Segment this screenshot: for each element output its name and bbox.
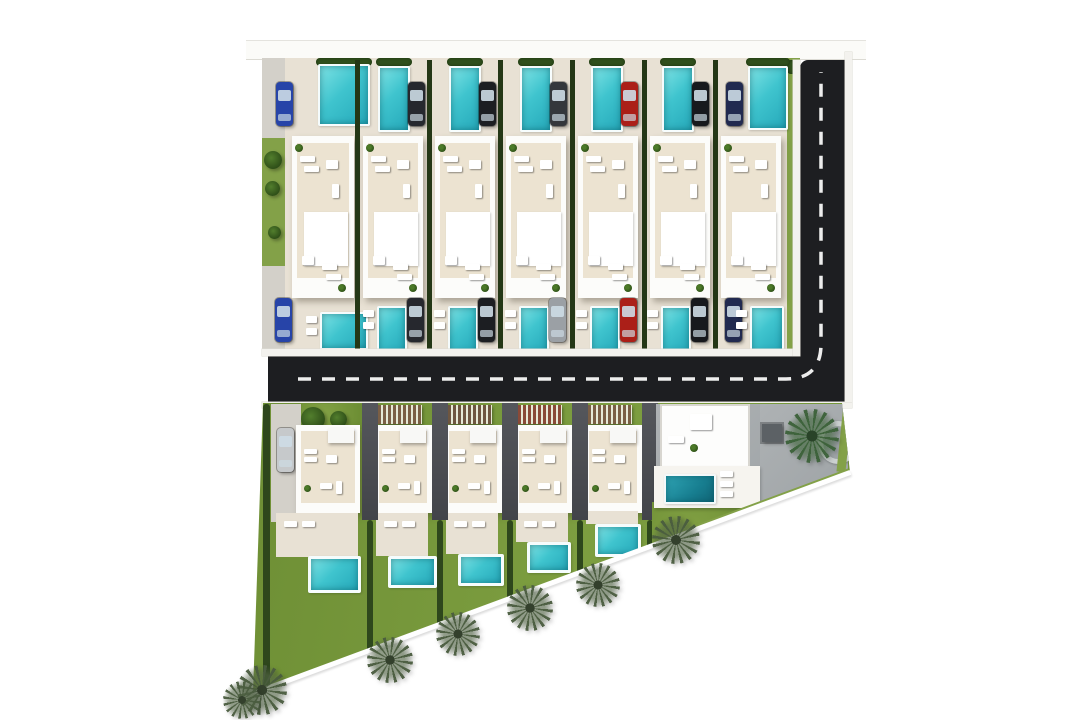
car-windshield (552, 90, 565, 101)
interior-dining-table (690, 414, 712, 430)
roof-furniture (608, 264, 623, 270)
car-rear-window (727, 330, 740, 337)
top-villa-3-car-top (479, 82, 496, 126)
top-villa-7-building (721, 136, 781, 298)
roof-plant (767, 284, 775, 292)
bottom-villa-4-building (514, 425, 572, 513)
hedge-row (518, 58, 554, 66)
car-windshield (693, 306, 706, 317)
bottom-villa-2-pergola (378, 405, 422, 424)
palm-tree (652, 516, 700, 564)
roof-furniture (326, 160, 338, 169)
corner-pool (664, 474, 716, 504)
roof-furniture (684, 160, 696, 169)
bottom-villa-5-building (584, 425, 642, 513)
top-villa-2-pool-bottom (377, 306, 407, 354)
roof-plant (724, 144, 732, 152)
roof-furniture (468, 483, 480, 489)
curb (793, 60, 800, 356)
car-rear-window (277, 330, 290, 337)
car-windshield (277, 306, 290, 317)
terrace-furniture (434, 310, 445, 317)
roof-furniture (465, 264, 480, 270)
bottom-villa-4-terrace (516, 513, 568, 542)
car-rear-window (480, 330, 493, 337)
roof-furniture (320, 483, 332, 489)
roof-furniture (658, 156, 673, 162)
top-villa-6-building (650, 136, 710, 298)
car-rear-window (622, 330, 635, 337)
palm-tree (507, 585, 553, 631)
roof-plant (452, 485, 459, 492)
tree (268, 226, 281, 239)
roof-furniture (761, 184, 768, 198)
top-villa-2-building (363, 136, 423, 298)
roof-furniture (733, 166, 748, 172)
roof-furniture (322, 264, 337, 270)
site-plan (0, 0, 1080, 720)
skylight-panel (400, 428, 426, 443)
bottom-villa-1-building (296, 425, 360, 513)
car-windshield (623, 90, 636, 101)
roof-furniture (624, 481, 630, 494)
roof-furniture (588, 256, 600, 265)
roof-plant (304, 485, 311, 492)
top-villa-5-pool-top (591, 66, 623, 132)
roof-furniture (684, 274, 699, 280)
top-villa-1-car-top (276, 82, 293, 126)
car-windshield (728, 90, 741, 101)
sidewalk-band (246, 40, 866, 60)
roof-plant (509, 144, 517, 152)
roof-plant (653, 144, 661, 152)
plot-divider-hedge (498, 60, 503, 354)
roof-plant (696, 284, 704, 292)
bottom-villa-2-building (374, 425, 432, 513)
top-villa-5-car-bottom (620, 298, 637, 342)
roof-furniture (300, 156, 315, 162)
terrace-furniture (524, 521, 537, 527)
roof-plant (581, 144, 589, 152)
palm-tree (436, 612, 480, 656)
car-rear-window (693, 330, 706, 337)
bottom-villa-3-terrace (446, 513, 498, 554)
plot-divider-hedge (642, 60, 647, 354)
palm-tree (223, 681, 261, 719)
roof-furniture (538, 483, 550, 489)
roof-furniture (680, 264, 695, 270)
roof-furniture (518, 166, 533, 172)
roof-furniture (546, 184, 553, 198)
top-villa-2-car-top (408, 82, 425, 126)
roof-furniture (590, 166, 605, 172)
terrace-furniture (402, 521, 415, 527)
roof-furniture (403, 184, 410, 198)
roof-furniture (397, 274, 412, 280)
terrace-furniture (302, 521, 315, 527)
roof-furniture (326, 274, 341, 280)
top-villa-6-pool-top (662, 66, 694, 132)
skylight-panel (470, 428, 496, 443)
roof-plant (481, 284, 489, 292)
roof-furniture (445, 256, 457, 265)
bottom-villa-4-pergola (518, 405, 562, 424)
top-villa-6-car-bottom (691, 298, 708, 342)
roof-furniture (414, 481, 420, 494)
road-vertical (800, 60, 845, 402)
top-villa-3-car-bottom (478, 298, 495, 342)
palm-tree (576, 563, 620, 607)
car-rear-window (409, 330, 422, 337)
roof-furniture (612, 274, 627, 280)
car-rear-window (481, 114, 494, 121)
car-windshield (409, 306, 422, 317)
roof-furniture (586, 156, 601, 162)
plot-divider-hedge (577, 520, 583, 696)
driveway (362, 402, 378, 520)
plot-divider-hedge (437, 520, 443, 696)
roof-furniture (393, 264, 408, 270)
car-windshield (410, 90, 423, 101)
roof-furniture (382, 449, 395, 454)
roof-furniture (447, 166, 462, 172)
car-windshield (481, 90, 494, 101)
top-villa-7-car-top (726, 82, 743, 126)
roof-furniture (332, 184, 339, 198)
tree (265, 181, 280, 196)
terrace-furniture (647, 310, 658, 317)
skylight-panel (328, 428, 354, 443)
car-rear-window (551, 330, 564, 337)
palm-tree (367, 637, 413, 683)
roof-furniture (536, 264, 551, 270)
terrace-furniture (576, 322, 587, 329)
bottom-villa-5-terrace (586, 511, 638, 524)
car-windshield (551, 306, 564, 317)
roof-furniture (469, 160, 481, 169)
terrace-furniture (736, 322, 747, 329)
skylight-panel (610, 428, 636, 443)
top-villa-4-pool-top (520, 66, 552, 132)
terrace-furniture (284, 521, 297, 527)
terrace-furniture (472, 521, 485, 527)
roof-furniture (612, 160, 624, 169)
top-villa-5-pool-bottom (590, 306, 620, 354)
roof-plant (409, 284, 417, 292)
roof-furniture (371, 156, 386, 162)
roof-furniture (522, 449, 535, 454)
car-rear-window (623, 114, 636, 121)
skylight-panel (540, 428, 566, 443)
terrace-furniture (647, 322, 658, 329)
top-villa-7-pool-bottom (750, 306, 784, 354)
roof-furniture (404, 455, 415, 463)
bottom-villa-3-pergola (448, 405, 492, 424)
roof-furniture (474, 455, 485, 463)
car-rear-window (410, 114, 423, 121)
hedge-row (589, 58, 625, 66)
roof-furniture (751, 264, 766, 270)
tree (264, 151, 282, 169)
roof-furniture (469, 274, 484, 280)
top-villa-2-car-bottom (407, 298, 424, 342)
top-villa-1-car-bottom (275, 298, 292, 342)
terrace-furniture (736, 310, 747, 317)
top-villa-1-pool-bottom (320, 312, 368, 350)
top-villa-2-pool-top (378, 66, 410, 132)
plot-divider-hedge (355, 60, 360, 354)
top-villa-7-pool-top (748, 66, 788, 130)
roof-plant (552, 284, 560, 292)
roof-furniture (516, 256, 528, 265)
terrace-furniture (384, 521, 397, 527)
curb (262, 349, 794, 356)
roof-furniture (375, 166, 390, 172)
roof-furniture (373, 256, 385, 265)
courtyard-palm (785, 409, 839, 463)
roof-furniture (304, 457, 317, 462)
interior-plant (690, 444, 698, 452)
bottom-villa-4-pool (527, 542, 571, 573)
car-rear-window (552, 114, 565, 121)
car-windshield (279, 436, 292, 447)
roof-furniture (731, 256, 743, 265)
car-windshield (480, 306, 493, 317)
plot-divider-hedge (570, 60, 575, 354)
roof-furniture (662, 166, 677, 172)
roof-furniture (544, 455, 555, 463)
roof-furniture (304, 449, 317, 454)
roof-furniture (398, 483, 410, 489)
bottom-villa-2-pool (388, 556, 437, 588)
top-villa-3-pool-top (449, 66, 481, 132)
roof-furniture (382, 457, 395, 462)
bottom-villa-3-pool (458, 554, 504, 586)
roof-plant (295, 144, 303, 152)
roof-furniture (397, 160, 409, 169)
driveway (572, 402, 588, 520)
roof-furniture (452, 449, 465, 454)
terrace-furniture (434, 322, 445, 329)
bottom-villa-3-building (444, 425, 502, 513)
corner-outdoor-table (762, 424, 782, 442)
plot-divider-hedge (713, 60, 718, 354)
terrace-furniture (454, 521, 467, 527)
roof-furniture (336, 481, 342, 494)
terrace-furniture (576, 310, 587, 317)
terrace-furniture (542, 521, 555, 527)
terrace-furniture (505, 310, 516, 317)
terrace-furniture (306, 316, 317, 323)
roof-furniture (443, 156, 458, 162)
roof-furniture (452, 457, 465, 462)
roof-furniture (484, 481, 490, 494)
corner-open-interior (660, 404, 750, 468)
roof-plant (592, 485, 599, 492)
roof-furniture (660, 256, 672, 265)
plot-divider-hedge (427, 60, 432, 354)
pool-lounger (720, 471, 733, 477)
roof-furniture (326, 455, 337, 463)
top-villa-4-pool-bottom (519, 306, 549, 354)
roof-furniture (304, 166, 319, 172)
car-windshield (694, 90, 707, 101)
roof-furniture (618, 184, 625, 198)
roof-furniture (614, 455, 625, 463)
roof-furniture (522, 457, 535, 462)
interior-sofa (668, 436, 684, 443)
roof-furniture (729, 156, 744, 162)
bottom-villa-2-terrace (376, 513, 428, 556)
hedge-row (746, 58, 790, 66)
boundary-hedge-left (263, 404, 270, 689)
top-villa-3-pool-bottom (448, 306, 478, 354)
top-villa-5-car-top (621, 82, 638, 126)
roof-furniture (475, 184, 482, 198)
roof-furniture (302, 256, 314, 265)
top-villa-3-building (435, 136, 495, 298)
top-villa-1-building (292, 136, 354, 298)
roof-furniture (592, 449, 605, 454)
hedge-row (447, 58, 483, 66)
top-villa-6-car-top (692, 82, 709, 126)
roof-plant (438, 144, 446, 152)
top-villa-1-pool-top (318, 64, 370, 126)
roof-furniture (755, 274, 770, 280)
car-rear-window (728, 114, 741, 121)
bottom-villa-5-pergola (588, 405, 632, 424)
hedge-row (376, 58, 412, 66)
roof-plant (382, 485, 389, 492)
curb (845, 52, 852, 402)
car-rear-window (279, 460, 292, 467)
terrace-furniture (306, 328, 317, 335)
car-windshield (278, 90, 291, 101)
top-villa-7-car-bottom (725, 298, 742, 342)
top-villa-4-car-bottom (549, 298, 566, 342)
roof-furniture (554, 481, 560, 494)
pool-lounger (720, 481, 733, 487)
roof-plant (366, 144, 374, 152)
roof-furniture (540, 274, 555, 280)
roof-plant (522, 485, 529, 492)
terrace-furniture (505, 322, 516, 329)
car-rear-window (694, 114, 707, 121)
terrace-furniture (363, 322, 374, 329)
roof-plant (338, 284, 346, 292)
roof-plant (624, 284, 632, 292)
top-villa-5-building (578, 136, 638, 298)
car-windshield (622, 306, 635, 317)
roof-furniture (592, 457, 605, 462)
bottom-villa-1-pool (308, 556, 361, 593)
roof-furniture (514, 156, 529, 162)
bottom-villa-1-terrace (276, 513, 358, 557)
driveway (502, 402, 518, 520)
car-rear-window (278, 114, 291, 121)
top-villa-4-building (506, 136, 566, 298)
driveway (432, 402, 448, 520)
roof-furniture (755, 160, 767, 169)
top-villa-4-car-top (550, 82, 567, 126)
roof-furniture (690, 184, 697, 198)
pool-lounger (720, 491, 733, 497)
hedge-row (660, 58, 696, 66)
top-villa-6-pool-bottom (661, 306, 691, 354)
terrace-furniture (363, 310, 374, 317)
roof-furniture (608, 483, 620, 489)
road-horizontal (268, 356, 845, 402)
roof-furniture (540, 160, 552, 169)
bottom-villa-1-car (277, 428, 294, 472)
